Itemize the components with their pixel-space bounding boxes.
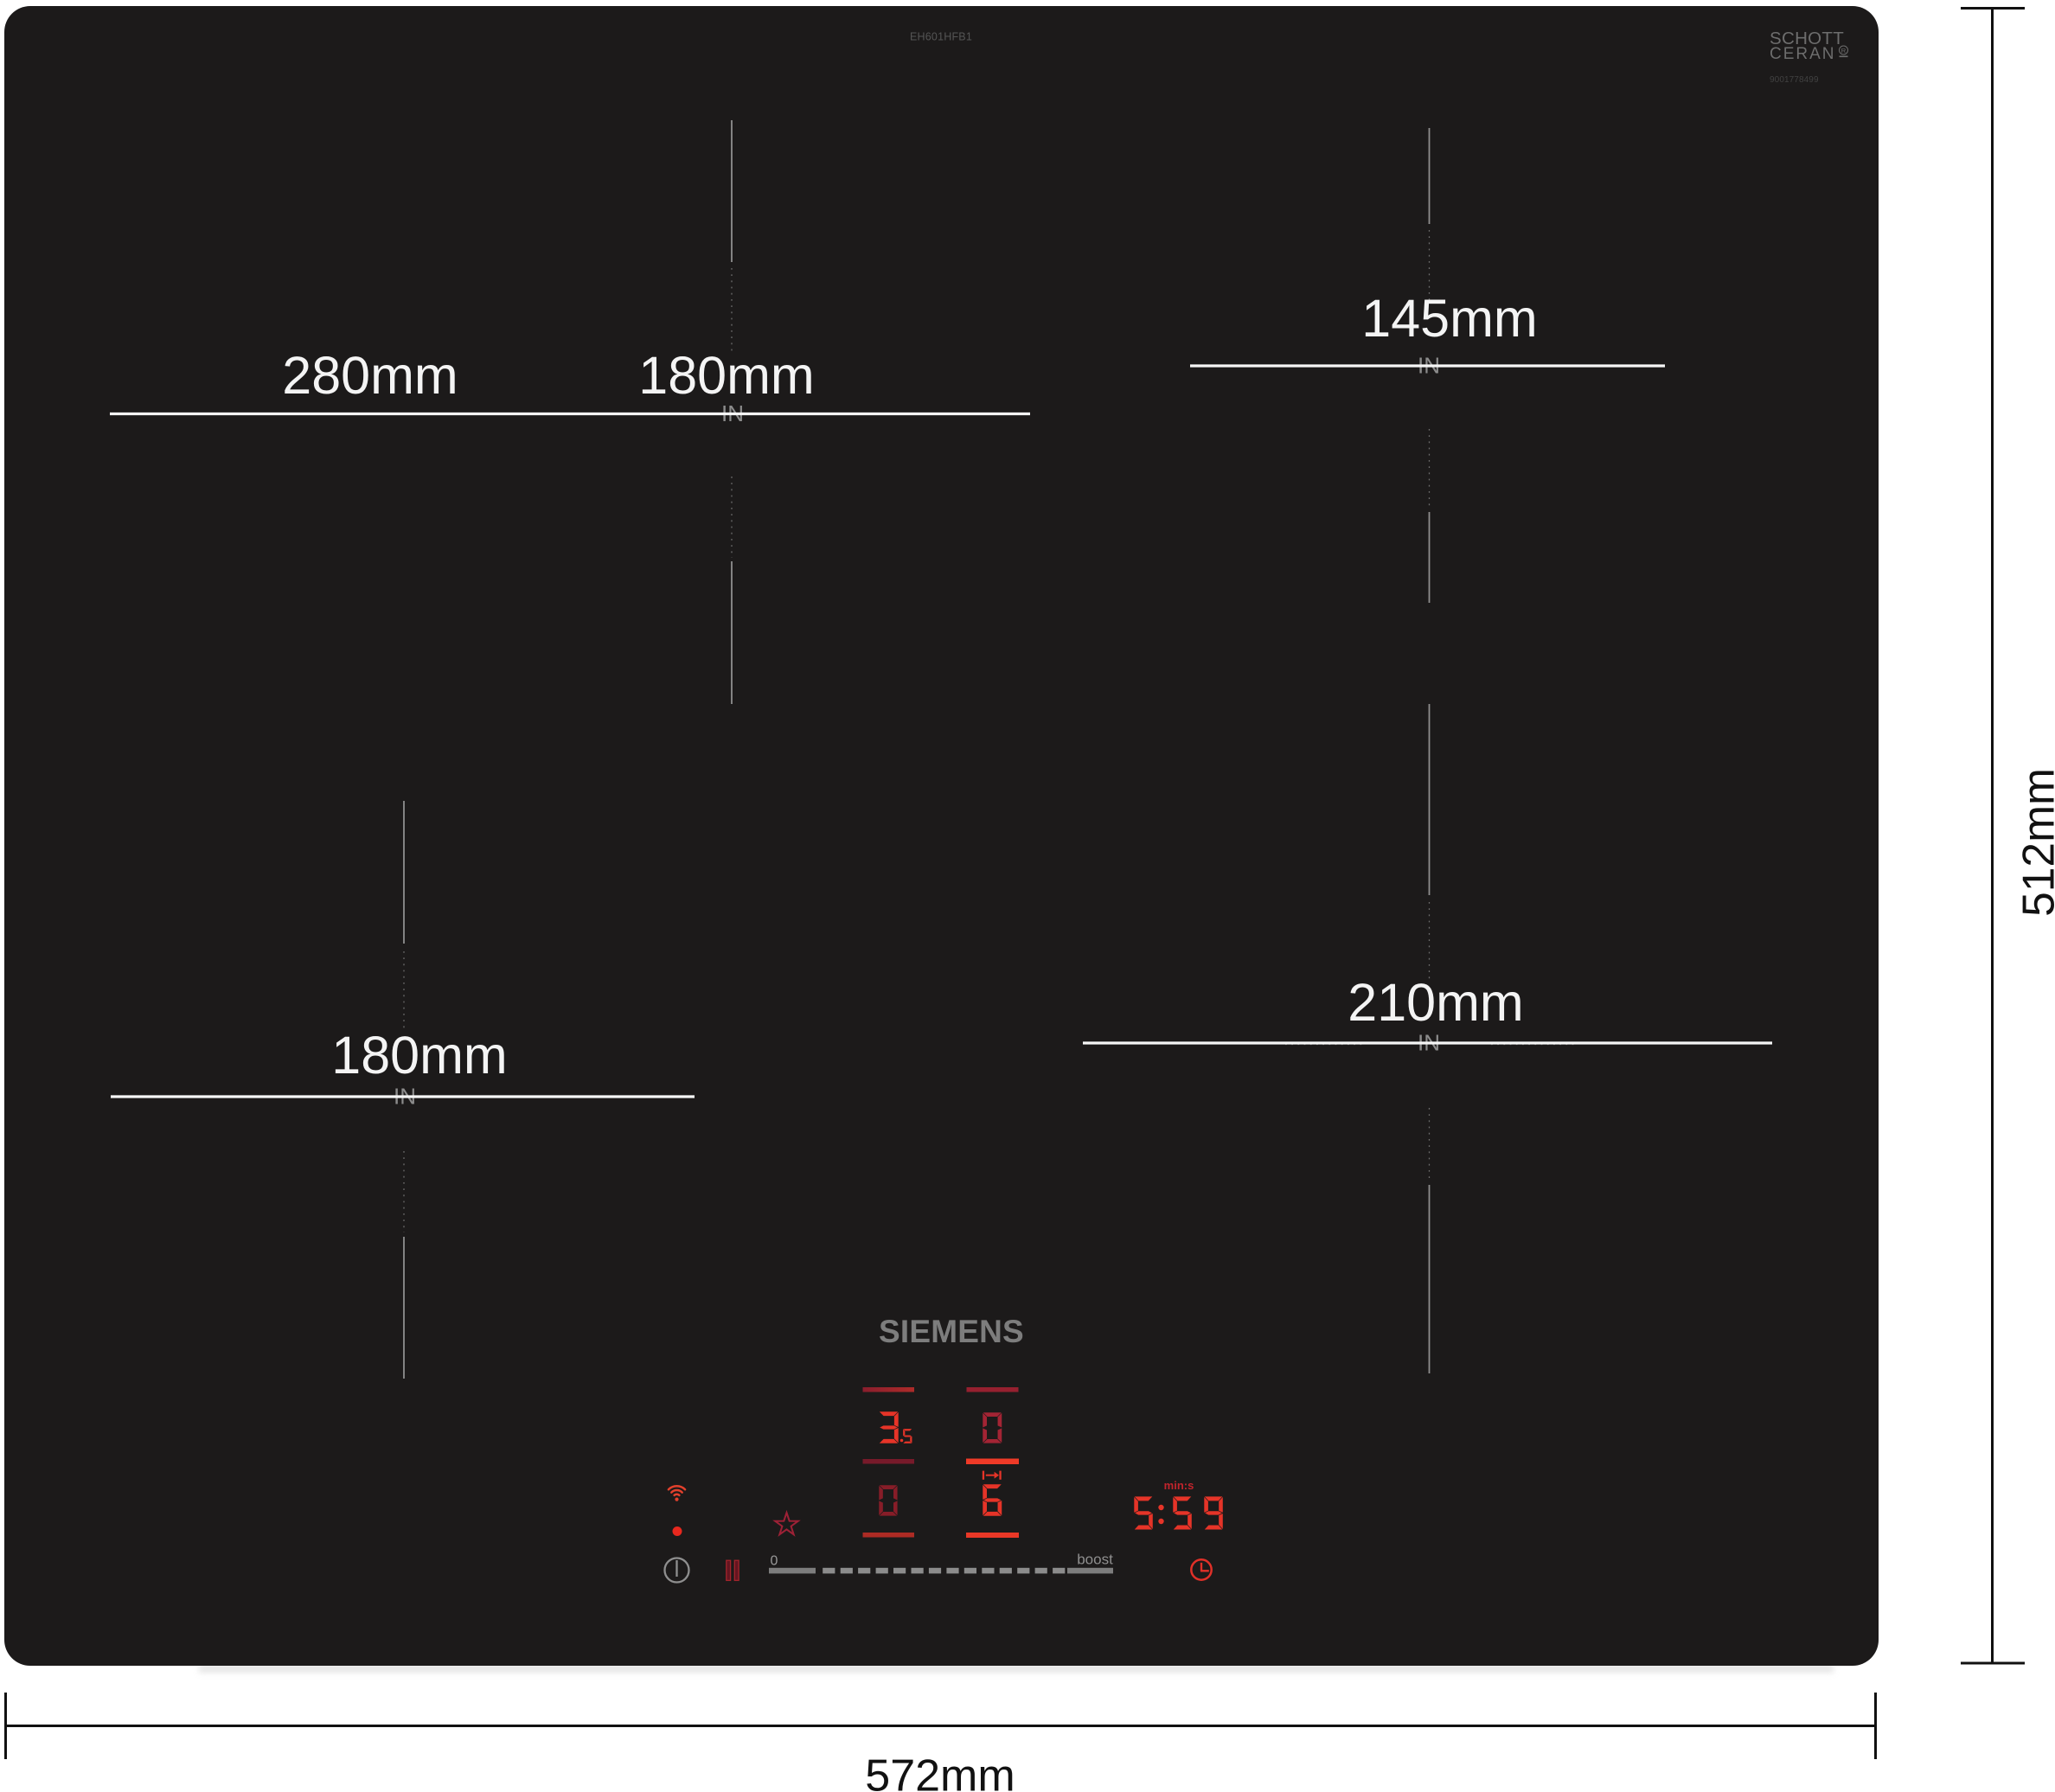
svg-text:0: 0 (771, 1554, 778, 1569)
svg-text:min:s: min:s (1164, 1479, 1194, 1492)
svg-text:180mm: 180mm (331, 1026, 507, 1085)
svg-text:CERAN: CERAN (1770, 45, 1836, 63)
svg-text:9001778499: 9001778499 (1770, 75, 1819, 85)
svg-text:145mm: 145mm (1361, 289, 1537, 348)
svg-text:572mm: 572mm (865, 1751, 1015, 1792)
svg-text:210mm: 210mm (1348, 973, 1523, 1032)
svg-text:180mm: 180mm (638, 346, 814, 405)
svg-text:boost: boost (1077, 1552, 1113, 1568)
svg-text:EH601HFB1: EH601HFB1 (910, 31, 972, 43)
svg-text:SIEMENS: SIEMENS (879, 1314, 1024, 1349)
svg-text:280mm: 280mm (282, 346, 458, 405)
svg-text:512mm: 512mm (2013, 768, 2055, 917)
svg-text:R: R (1841, 47, 1847, 54)
